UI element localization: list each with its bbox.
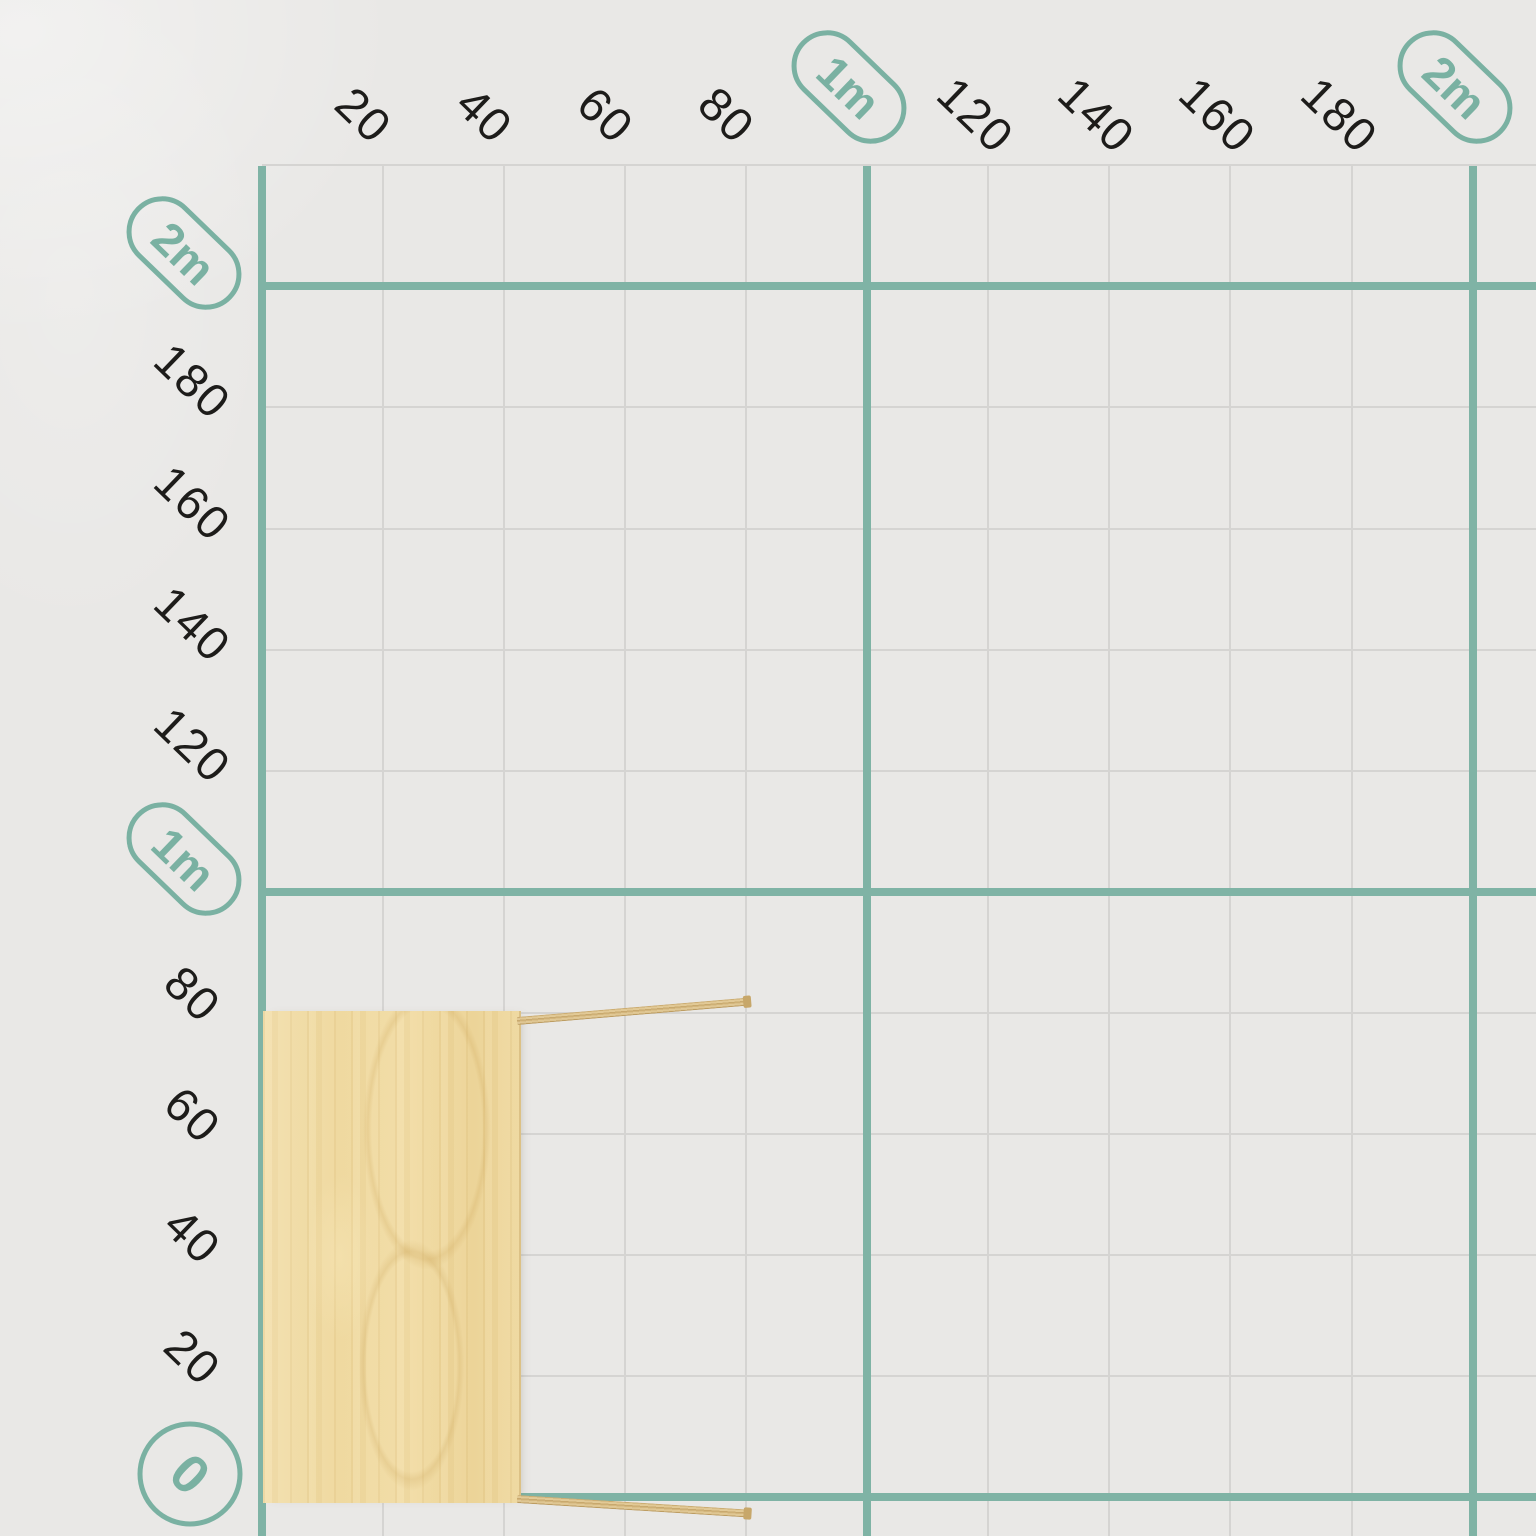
x-axis-label-2m: 2m	[1382, 16, 1526, 159]
gridline-minor-h-120cm	[262, 770, 1536, 772]
y-axis-label-120: 120	[144, 696, 243, 794]
y-axis-label-2m: 2m	[112, 182, 256, 325]
x-axis-label-60: 60	[567, 76, 646, 155]
gridline-minor-v-160cm	[1229, 166, 1231, 1536]
gridline-minor-h-140cm	[262, 649, 1536, 651]
tabletop-wood-surface	[263, 1011, 521, 1503]
x-axis-label-140: 140	[1048, 66, 1147, 164]
x-axis-label-20: 20	[325, 76, 404, 155]
gridline-major-h-100cm	[262, 888, 1536, 896]
gridline-minor-h-220cm	[262, 164, 1536, 166]
gridline-minor-h-160cm	[262, 528, 1536, 530]
gridline-minor-v-180cm	[1351, 166, 1353, 1536]
y-axis-label-60: 60	[154, 1075, 233, 1154]
x-axis-label-80: 80	[688, 76, 767, 155]
gridline-major-v-100cm	[863, 166, 871, 1536]
x-axis-label-160: 160	[1169, 66, 1268, 164]
y-axis-label-1m: 1m	[112, 787, 256, 930]
x-axis-label-40: 40	[446, 76, 525, 155]
gridline-major-v-200cm	[1469, 166, 1477, 1536]
table-leg-bottom-end	[743, 1507, 752, 1519]
x-axis-label-180: 180	[1290, 66, 1389, 164]
gridline-minor-v-140cm	[1108, 166, 1110, 1536]
y-axis-label-140: 140	[144, 574, 243, 672]
y-axis-label-zero-text: 0	[158, 1441, 223, 1506]
y-axis-label-40: 40	[154, 1197, 233, 1276]
x-axis-label-1m: 1m	[777, 16, 921, 159]
ambient-highlight	[0, 0, 1536, 1536]
planner-grid-canvas[interactable]: 204060801m1201401601802m 0204060801m1201…	[0, 0, 1536, 1536]
gridline-minor-h-180cm	[262, 406, 1536, 408]
gridline-major-h-200cm	[262, 282, 1536, 290]
x-axis-label-120: 120	[927, 66, 1026, 164]
y-axis-label-20: 20	[154, 1318, 233, 1397]
y-axis-label-160: 160	[144, 453, 243, 551]
y-axis-label-80: 80	[154, 954, 233, 1033]
gridline-minor-v-60cm	[624, 166, 626, 1536]
gridline-minor-v-80cm	[745, 166, 747, 1536]
y-axis-label-180: 180	[144, 332, 243, 430]
y-axis-label-0: 0	[138, 1422, 243, 1527]
table-leg-top-end	[743, 995, 752, 1008]
gridline-minor-v-120cm	[987, 166, 989, 1536]
